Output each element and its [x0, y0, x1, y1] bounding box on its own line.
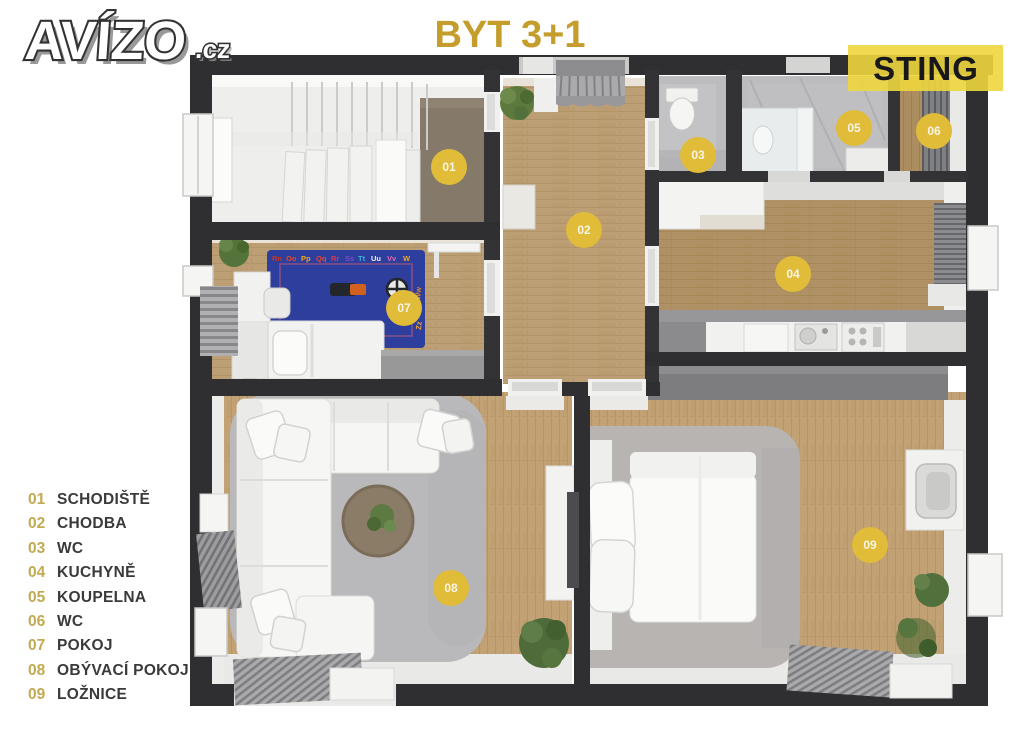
svg-text:05: 05 — [28, 589, 46, 606]
svg-text:08: 08 — [444, 581, 458, 595]
svg-text:SCHODIŠTĚ: SCHODIŠTĚ — [57, 490, 150, 508]
svg-text:STING: STING — [873, 50, 979, 87]
svg-text:Uu: Uu — [371, 254, 381, 263]
svg-text:KOUPELNA: KOUPELNA — [57, 589, 146, 606]
svg-text:04: 04 — [786, 267, 800, 281]
svg-text:Rr: Rr — [331, 254, 339, 263]
svg-text:POKOJ: POKOJ — [57, 637, 113, 654]
svg-text:09: 09 — [28, 686, 46, 703]
svg-text:02: 02 — [28, 515, 45, 532]
svg-text:01: 01 — [442, 160, 456, 174]
svg-text:Qq: Qq — [316, 254, 327, 263]
svg-text:W: W — [403, 254, 411, 263]
svg-text:.cz: .cz — [195, 34, 232, 64]
svg-text:Tt: Tt — [358, 254, 366, 263]
svg-text:03: 03 — [28, 540, 46, 557]
svg-text:LOŽNICE: LOŽNICE — [57, 685, 127, 703]
svg-text:WC: WC — [57, 613, 83, 630]
svg-text:BYT 3+1: BYT 3+1 — [434, 14, 585, 56]
svg-text:Vv: Vv — [387, 254, 397, 263]
svg-text:06: 06 — [927, 124, 941, 138]
svg-text:Pp: Pp — [301, 254, 311, 263]
svg-text:07: 07 — [28, 637, 45, 654]
svg-text:WC: WC — [57, 540, 83, 557]
svg-text:05: 05 — [847, 121, 861, 135]
svg-text:Rn: Rn — [272, 254, 282, 263]
svg-text:03: 03 — [691, 148, 705, 162]
svg-text:04: 04 — [28, 564, 46, 581]
svg-text:AVÍZO: AVÍZO — [23, 11, 188, 71]
svg-text:OBÝVACÍ POKOJ: OBÝVACÍ POKOJ — [57, 661, 189, 679]
svg-text:Oo: Oo — [286, 254, 297, 263]
svg-text:Ss: Ss — [345, 254, 354, 263]
svg-text:01: 01 — [28, 491, 46, 508]
svg-text:02: 02 — [577, 223, 591, 237]
svg-text:06: 06 — [28, 613, 46, 630]
svg-text:Zz: Zz — [414, 321, 424, 330]
svg-text:09: 09 — [863, 538, 877, 552]
svg-text:07: 07 — [397, 301, 411, 315]
svg-text:CHODBA: CHODBA — [57, 515, 127, 532]
svg-text:KUCHYNĚ: KUCHYNĚ — [57, 563, 136, 581]
svg-text:08: 08 — [28, 662, 46, 679]
